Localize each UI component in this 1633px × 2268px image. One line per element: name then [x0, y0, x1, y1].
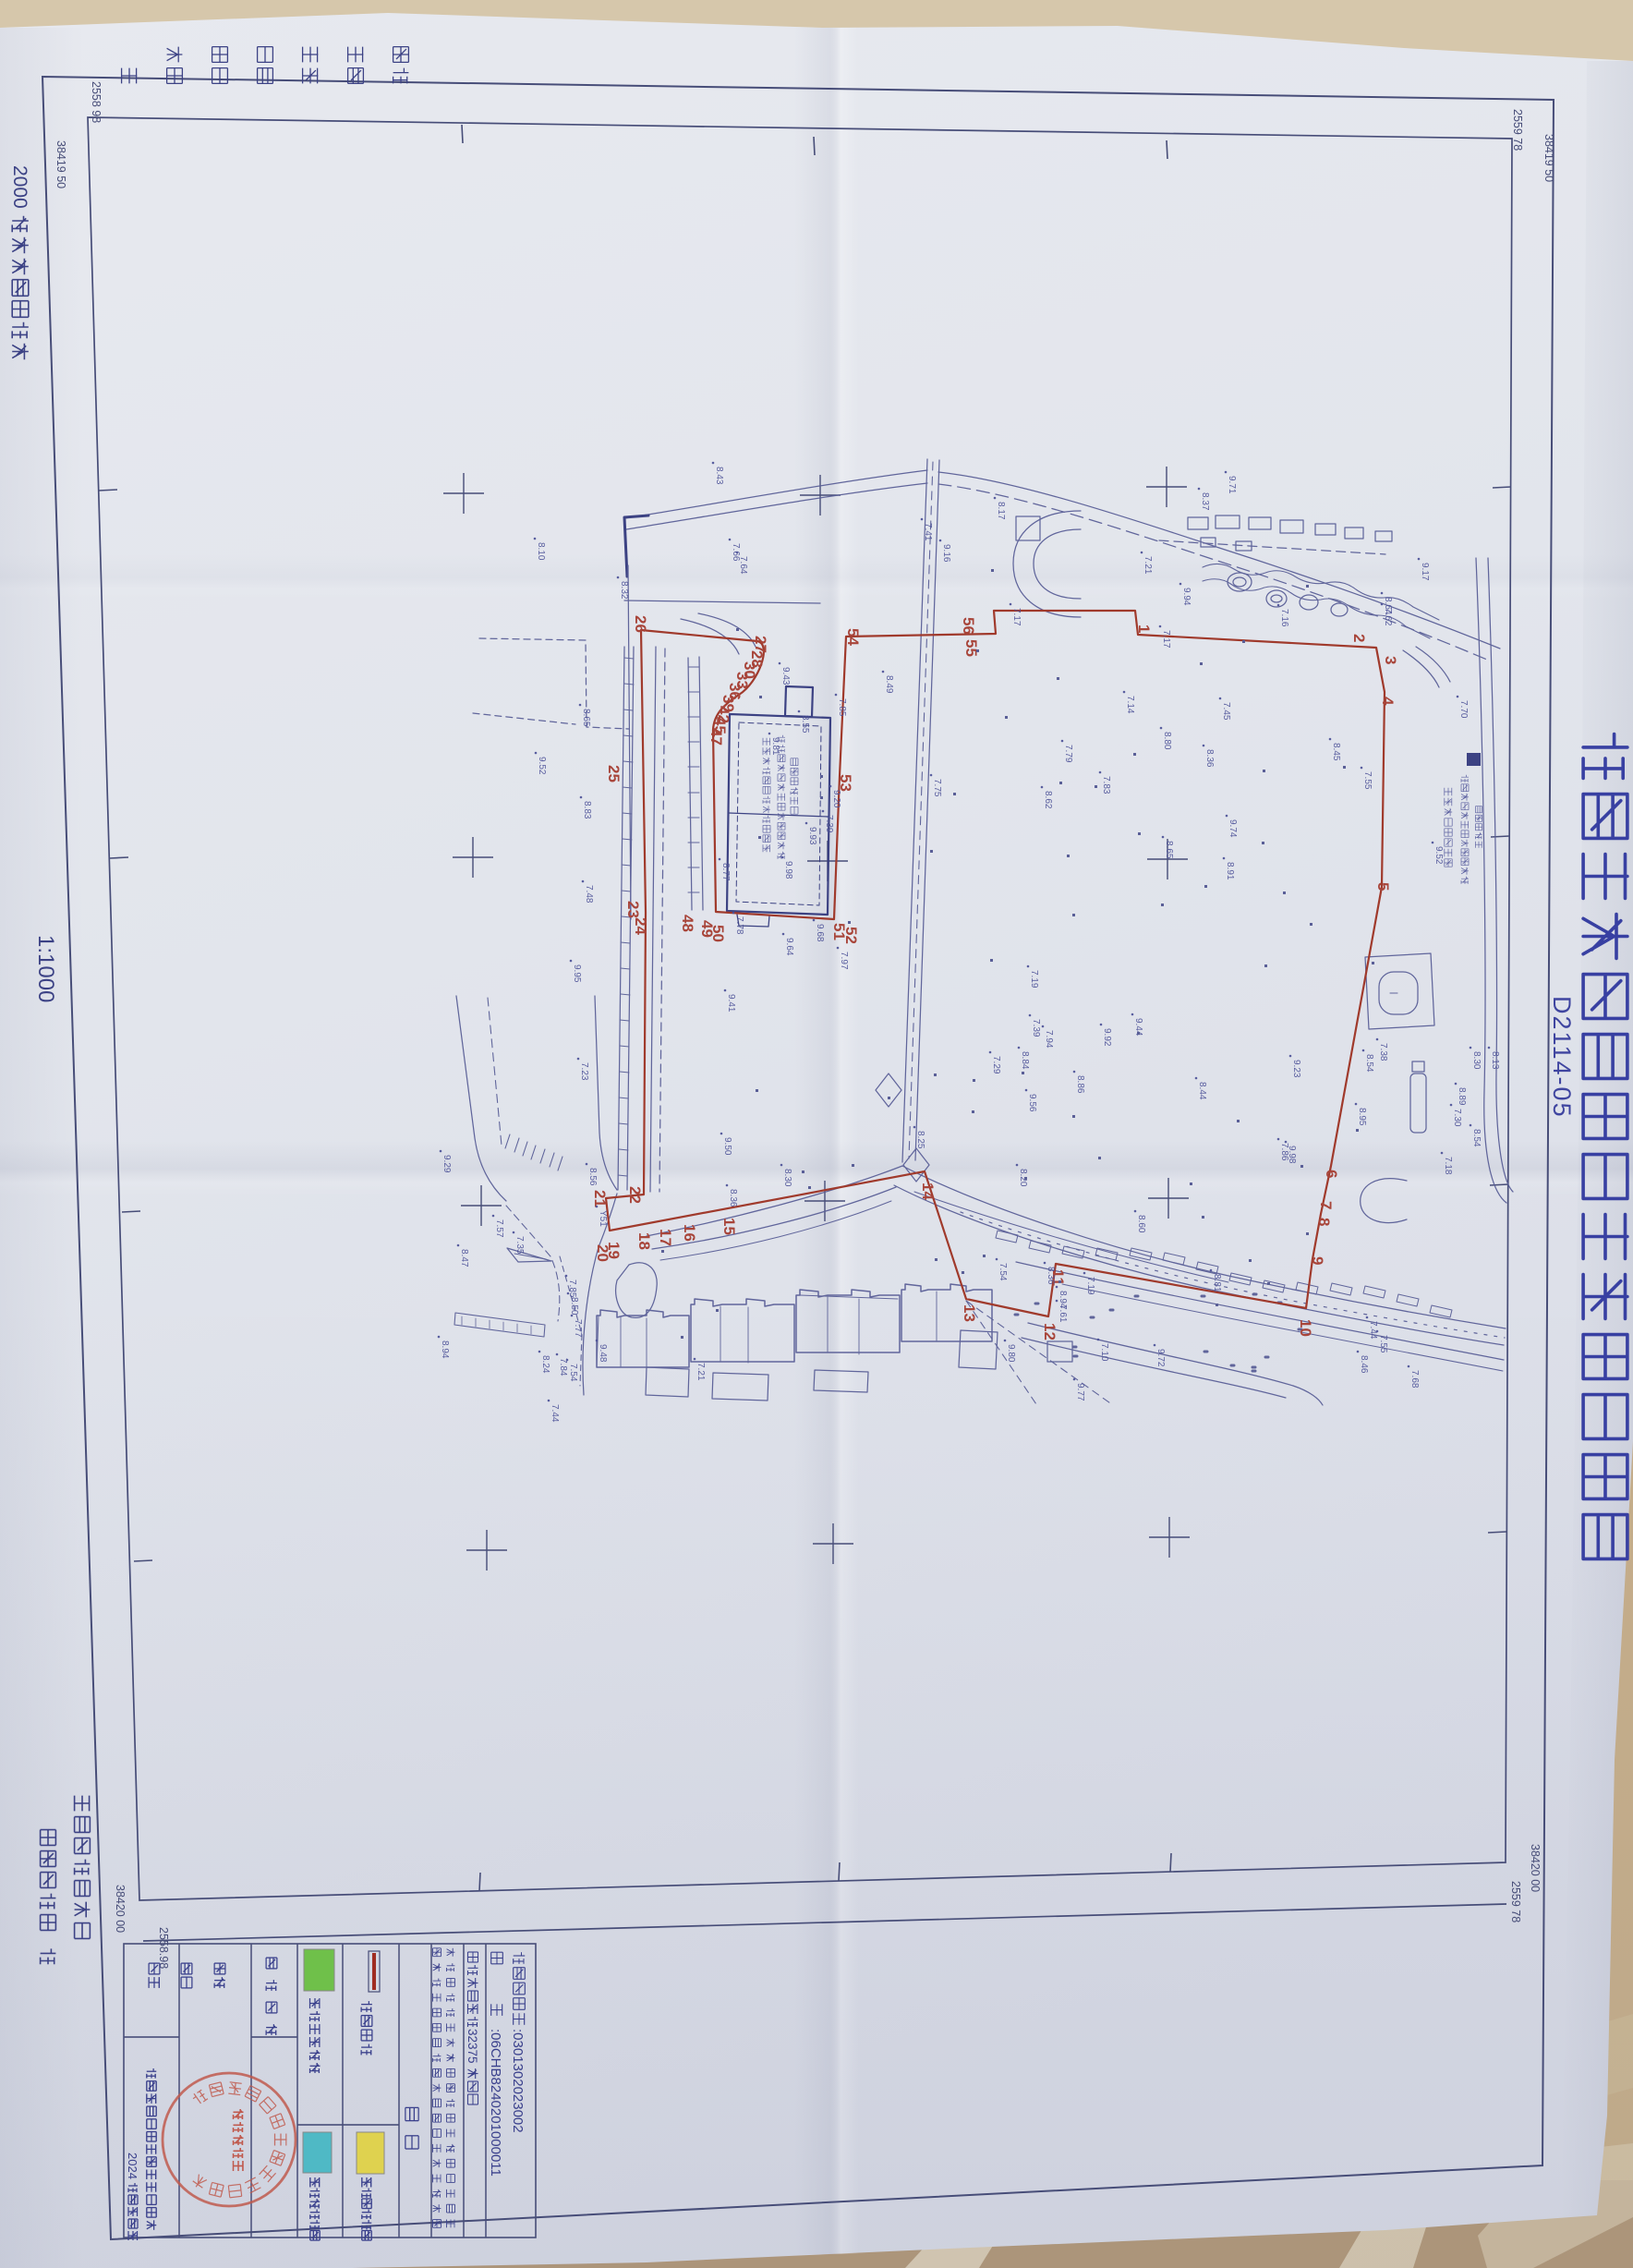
svg-text:38420 00: 38420 00	[114, 1885, 127, 1933]
svg-text:56: 56	[960, 617, 977, 635]
svg-text:14: 14	[919, 1183, 937, 1200]
svg-text:7.39: 7.39	[1031, 1019, 1041, 1037]
svg-text:22: 22	[626, 1186, 644, 1204]
svg-text:52: 52	[842, 927, 860, 944]
svg-text:7.48: 7.48	[584, 885, 594, 904]
svg-text:8.91: 8.91	[1225, 862, 1235, 880]
svg-text:8.47: 8.47	[459, 1249, 469, 1267]
svg-text:8.94: 8.94	[1058, 1291, 1068, 1309]
svg-text:7.14: 7.14	[1125, 696, 1135, 714]
svg-text:7.77: 7.77	[573, 1319, 583, 1338]
svg-text:8.62: 8.62	[1043, 791, 1053, 809]
svg-text:7.21: 7.21	[1143, 556, 1153, 575]
svg-text:3: 3	[1382, 656, 1399, 664]
svg-text:23: 23	[624, 901, 642, 918]
svg-text:2558.98: 2558.98	[157, 1927, 170, 1969]
svg-text:9: 9	[1309, 1256, 1326, 1265]
svg-text:8.37: 8.37	[1200, 492, 1210, 511]
svg-text:8.32: 8.32	[619, 581, 629, 600]
svg-text:54: 54	[844, 628, 862, 646]
svg-text:8.17: 8.17	[996, 502, 1006, 520]
svg-text:9.71: 9.71	[1227, 476, 1237, 494]
svg-text:10: 10	[1297, 1319, 1314, 1337]
svg-text:8.13: 8.13	[1490, 1051, 1500, 1070]
svg-text:8.43: 8.43	[714, 467, 724, 485]
svg-text:7.30: 7.30	[1452, 1109, 1462, 1127]
svg-text:38419 50: 38419 50	[54, 140, 67, 188]
svg-text:7.23: 7.23	[579, 1062, 589, 1081]
svg-text:16: 16	[681, 1224, 698, 1242]
svg-text:2558 98: 2558 98	[90, 81, 103, 123]
svg-text:9.41: 9.41	[726, 994, 736, 1013]
svg-text:24: 24	[632, 917, 649, 935]
svg-text:9.93: 9.93	[807, 827, 817, 845]
svg-text:8.81: 8.81	[1212, 1274, 1222, 1292]
svg-text:13: 13	[961, 1304, 978, 1322]
svg-text:8.30: 8.30	[1471, 1051, 1482, 1070]
svg-text:2024: 2024	[126, 2153, 139, 2179]
svg-text:9.95: 9.95	[572, 964, 582, 983]
svg-text:8.50: 8.50	[569, 1297, 579, 1316]
svg-text:7.57: 7.57	[494, 1219, 504, 1238]
svg-text:12: 12	[1041, 1323, 1058, 1340]
svg-text:D2114-05: D2114-05	[1548, 996, 1576, 1119]
svg-text:2559 78: 2559 78	[1509, 1881, 1522, 1922]
svg-text:8.44: 8.44	[1197, 1082, 1207, 1100]
svg-text:8.65: 8.65	[1164, 841, 1174, 859]
svg-text:38419 50: 38419 50	[1542, 134, 1555, 182]
svg-text:7.16: 7.16	[1279, 609, 1289, 627]
svg-text:48: 48	[679, 915, 696, 932]
svg-text:8.36: 8.36	[728, 1189, 738, 1207]
svg-text:8.86: 8.86	[1075, 1075, 1085, 1094]
svg-text:9.52: 9.52	[537, 757, 547, 775]
svg-text:9.43: 9.43	[780, 667, 791, 685]
svg-text:7.21: 7.21	[696, 1363, 706, 1381]
svg-text:18: 18	[635, 1232, 653, 1250]
svg-text:8.83: 8.83	[582, 801, 592, 819]
svg-text:15: 15	[720, 1218, 738, 1235]
svg-text:7.55: 7.55	[1378, 1335, 1388, 1353]
svg-text:7.17: 7.17	[1161, 630, 1171, 649]
svg-text:7.78: 7.78	[734, 916, 744, 935]
svg-text:Y51: Y51	[598, 1210, 608, 1227]
svg-text:8.30: 8.30	[782, 1169, 792, 1187]
svg-text:8: 8	[1315, 1218, 1333, 1226]
svg-text:26: 26	[632, 615, 649, 633]
svg-text:7.39: 7.39	[824, 815, 834, 833]
svg-text:8.89: 8.89	[1457, 1087, 1467, 1106]
svg-text:8.64: 8.64	[1383, 597, 1393, 615]
svg-text:7: 7	[1317, 1201, 1335, 1209]
svg-text:8.45: 8.45	[1331, 743, 1341, 761]
svg-text:8.54: 8.54	[1471, 1129, 1482, 1147]
svg-text:7.38: 7.38	[1378, 1043, 1388, 1061]
svg-text::06CHB8240201000011: :06CHB8240201000011	[488, 2029, 503, 2177]
svg-text:9.94: 9.94	[1181, 588, 1191, 606]
svg-text:8.36: 8.36	[1046, 1267, 1056, 1285]
svg-text:2000: 2000	[9, 165, 30, 209]
svg-text::0301302023002: :0301302023002	[510, 2029, 526, 2133]
svg-text:9.20: 9.20	[831, 790, 841, 808]
svg-text:7.18: 7.18	[1443, 1157, 1453, 1175]
svg-text:7.79: 7.79	[1063, 745, 1073, 763]
svg-text:8.36: 8.36	[1204, 749, 1215, 768]
svg-text:50: 50	[709, 925, 727, 942]
svg-text:8.24: 8.24	[540, 1355, 550, 1374]
svg-text:7.66: 7.66	[731, 543, 741, 562]
svg-text:9.50: 9.50	[722, 1137, 732, 1156]
svg-text:1:1000: 1:1000	[33, 935, 58, 1002]
svg-text:8.56: 8.56	[587, 1168, 598, 1186]
svg-text:7.19: 7.19	[1085, 1277, 1095, 1295]
svg-text:21: 21	[591, 1190, 609, 1207]
svg-text:9.81: 9.81	[770, 737, 780, 756]
svg-text:7.19: 7.19	[1029, 970, 1039, 988]
svg-text:25: 25	[605, 765, 623, 782]
svg-text:6: 6	[1323, 1170, 1340, 1178]
svg-text:4: 4	[1379, 697, 1397, 706]
svg-text:9.56: 9.56	[1027, 1094, 1037, 1112]
svg-text:9.48: 9.48	[598, 1344, 608, 1363]
svg-text:47: 47	[708, 728, 725, 746]
svg-text:2559 78: 2559 78	[1511, 109, 1524, 151]
svg-text:8.95: 8.95	[1357, 1108, 1367, 1126]
svg-text:7.68: 7.68	[1409, 1370, 1420, 1389]
svg-text:8.46: 8.46	[1359, 1355, 1369, 1374]
svg-text:9.80: 9.80	[1006, 1344, 1016, 1363]
svg-text:8.49: 8.49	[884, 675, 894, 694]
svg-text:7.35: 7.35	[514, 1236, 525, 1255]
svg-text:7.54: 7.54	[568, 1364, 578, 1382]
svg-text:9.98: 9.98	[1287, 1146, 1297, 1164]
svg-text:8.55: 8.55	[800, 715, 810, 734]
svg-text:9.64: 9.64	[784, 938, 794, 956]
svg-text:7.85: 7.85	[567, 1280, 577, 1298]
svg-text:9.72: 9.72	[1155, 1349, 1166, 1367]
svg-text:8.80: 8.80	[1162, 732, 1172, 750]
svg-text:7.55: 7.55	[1362, 771, 1373, 790]
svg-text:38420 00: 38420 00	[1529, 1844, 1542, 1892]
svg-text:8.54: 8.54	[1364, 1054, 1374, 1073]
svg-text:8.65: 8.65	[581, 709, 591, 727]
svg-text:8.84: 8.84	[1020, 1051, 1030, 1070]
svg-text:7.17: 7.17	[1011, 608, 1022, 626]
svg-text:9.98: 9.98	[783, 861, 793, 879]
svg-text:55: 55	[962, 639, 980, 657]
svg-text:7.94: 7.94	[1044, 1030, 1054, 1049]
svg-text:17: 17	[657, 1229, 674, 1246]
svg-text:9.29: 9.29	[442, 1155, 452, 1173]
svg-text:7.85: 7.85	[837, 698, 847, 717]
svg-text:7.75: 7.75	[932, 779, 942, 797]
svg-text:5: 5	[1374, 882, 1392, 891]
svg-text:9.17: 9.17	[1420, 563, 1430, 581]
svg-text:7.83: 7.83	[1101, 776, 1111, 794]
svg-text:9.23: 9.23	[1291, 1060, 1301, 1078]
svg-text:7.70: 7.70	[1458, 700, 1469, 719]
svg-text:9.68: 9.68	[815, 924, 825, 942]
svg-text:7.10: 7.10	[1099, 1343, 1109, 1362]
svg-text:7.44: 7.44	[550, 1404, 560, 1423]
svg-text:2: 2	[1350, 634, 1368, 642]
svg-text:8.77: 8.77	[720, 863, 731, 881]
svg-text:9.52: 9.52	[1433, 846, 1444, 865]
svg-text:7.54: 7.54	[998, 1263, 1008, 1281]
svg-text:7.97: 7.97	[839, 952, 849, 970]
svg-text:8.25: 8.25	[915, 1131, 925, 1149]
svg-text:8.94: 8.94	[440, 1340, 450, 1359]
svg-text:8.10: 8.10	[536, 542, 546, 561]
svg-text:8.60: 8.60	[1136, 1215, 1146, 1233]
svg-text:9.74: 9.74	[1228, 819, 1238, 838]
svg-text:20: 20	[594, 1244, 611, 1262]
svg-text:32375: 32375	[466, 2029, 479, 2064]
svg-text:7.41: 7.41	[923, 523, 933, 541]
svg-text:7.29: 7.29	[991, 1056, 1001, 1074]
svg-text:1: 1	[1135, 625, 1153, 633]
svg-text:9.16: 9.16	[941, 544, 951, 563]
svg-text:9.77: 9.77	[1075, 1383, 1085, 1401]
svg-text:9.92: 9.92	[1102, 1028, 1112, 1047]
svg-text:7.45: 7.45	[1221, 702, 1231, 721]
